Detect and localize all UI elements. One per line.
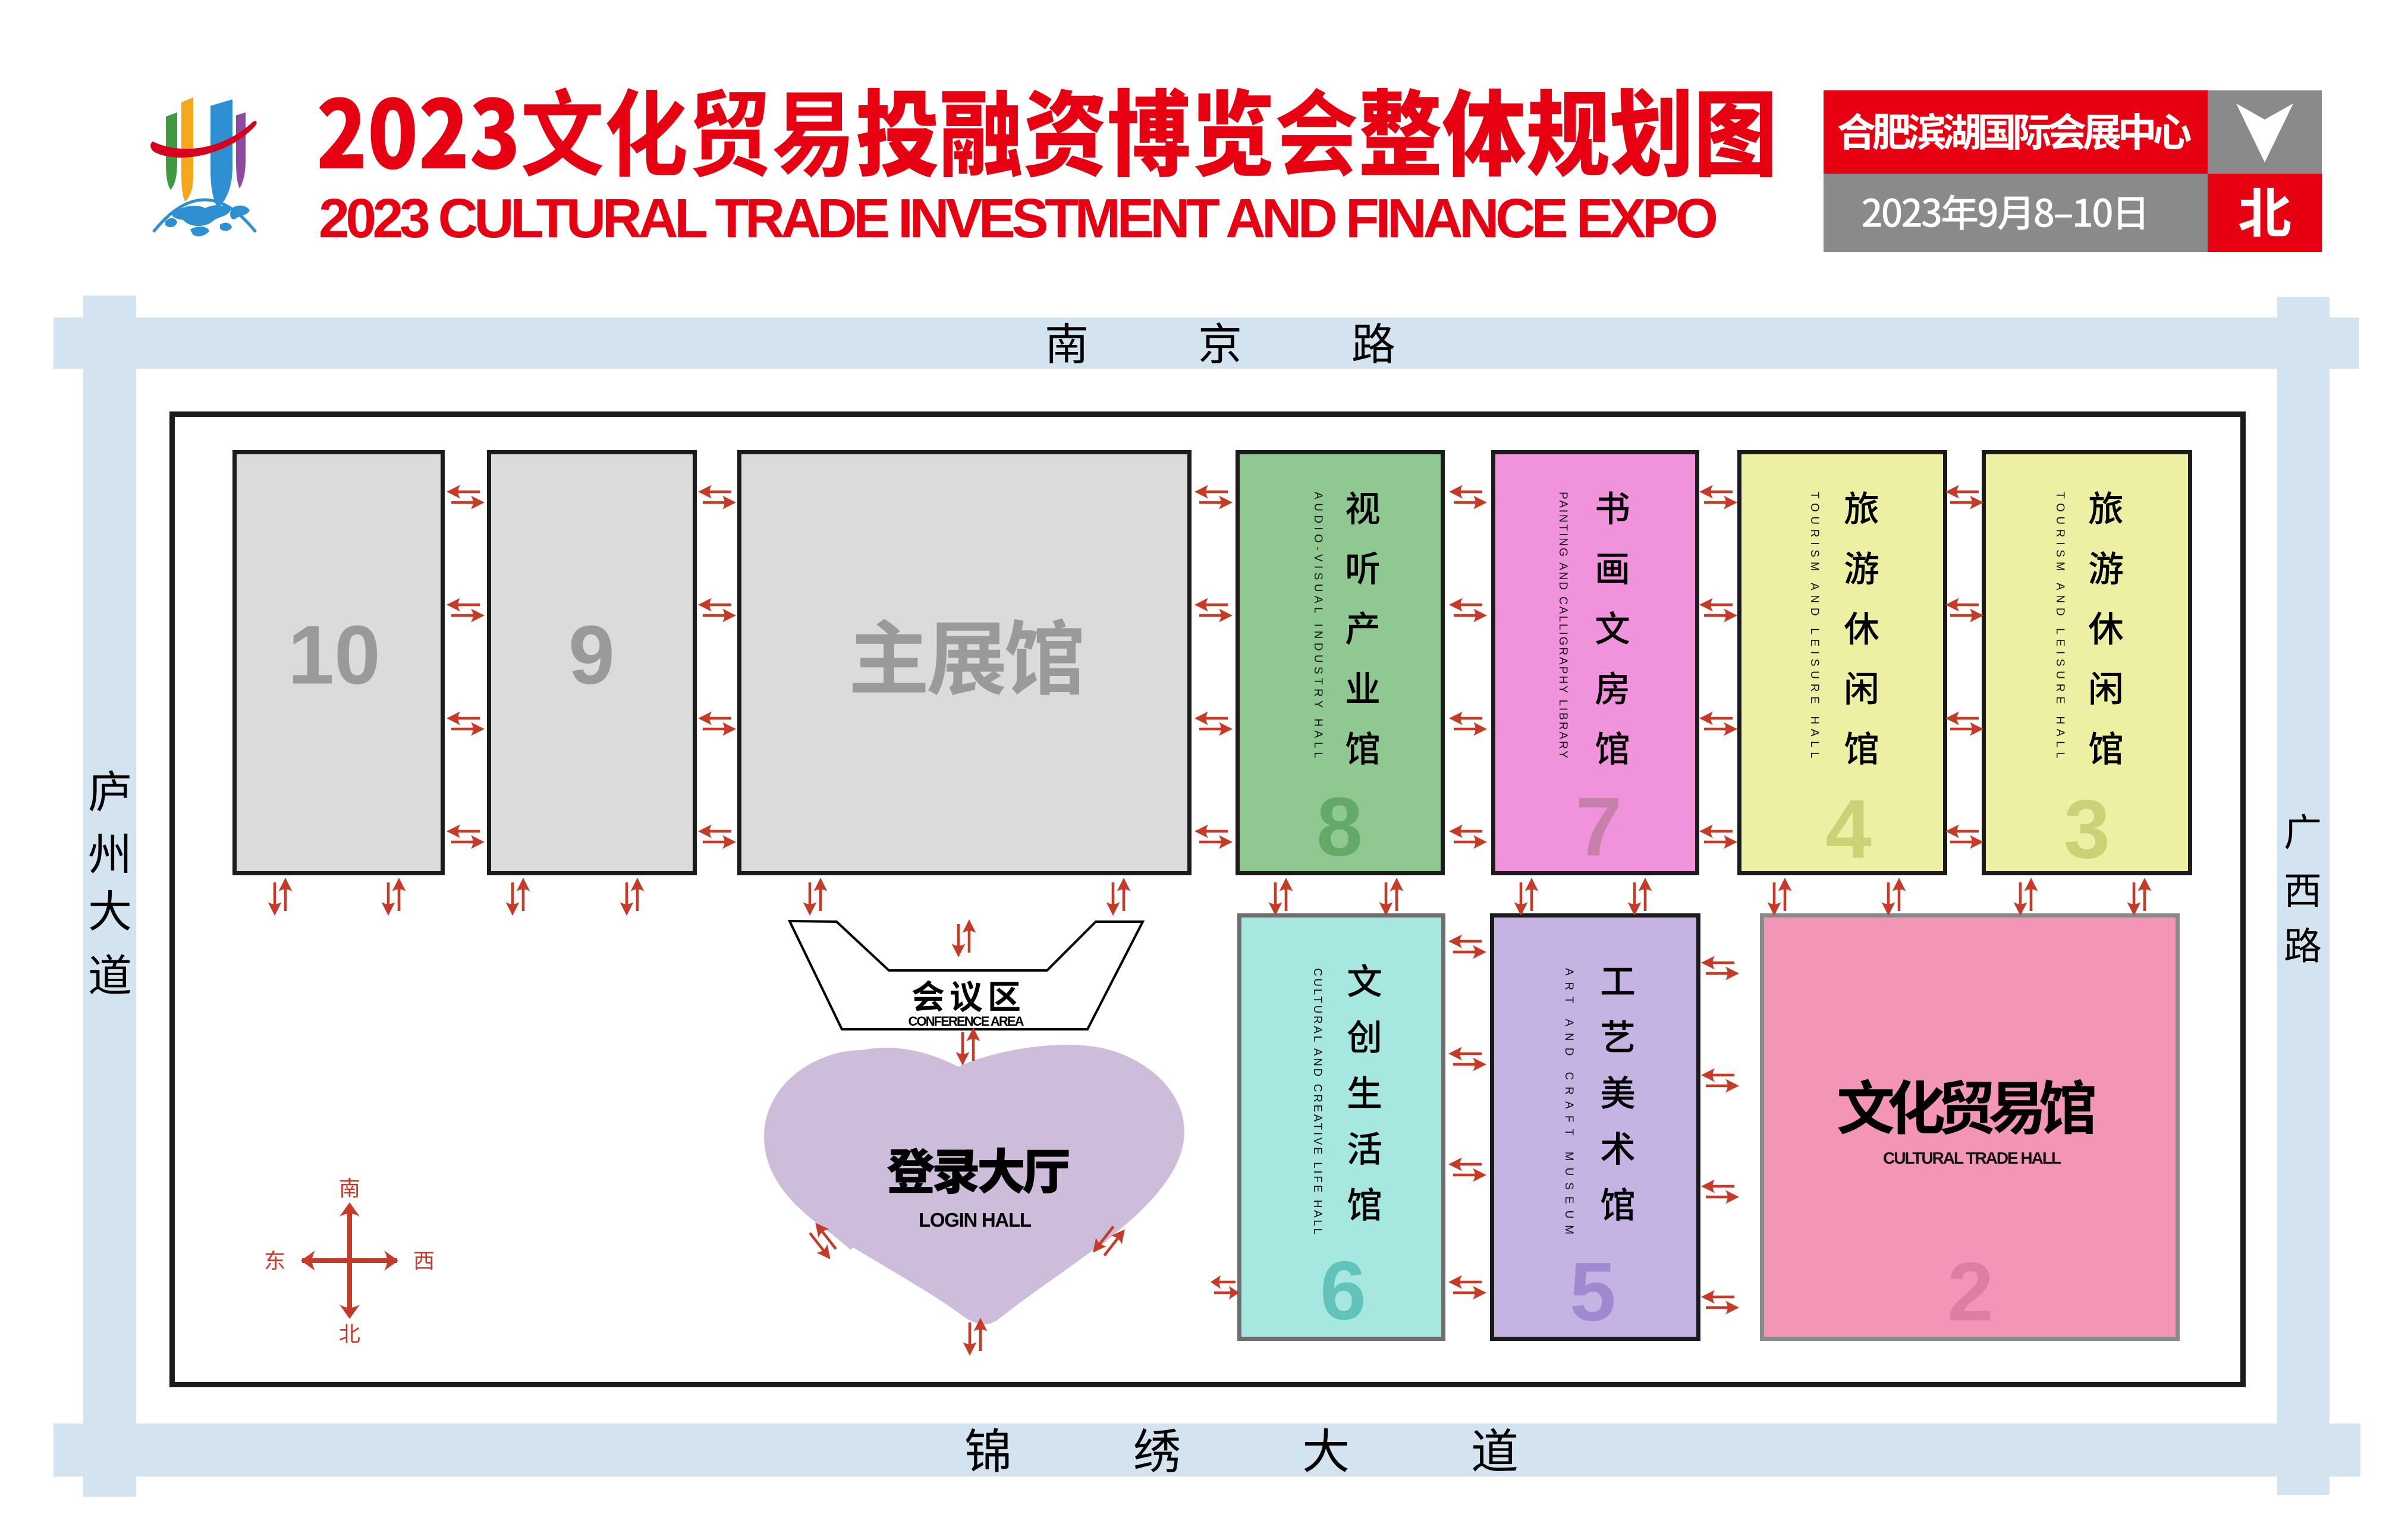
svg-text:9: 9 [568, 608, 615, 702]
svg-text:10: 10 [288, 608, 381, 702]
svg-text:8: 8 [1316, 780, 1363, 874]
svg-text:3: 3 [2064, 783, 2110, 876]
svg-text:2023 CULTURAL TRADE INVESTMENT: 2023 CULTURAL TRADE INVESTMENT AND FINAN… [319, 187, 1718, 249]
svg-text:CONFERENCE AREA: CONFERENCE AREA [908, 1014, 1024, 1029]
svg-text:LOGIN HALL: LOGIN HALL [919, 1209, 1032, 1231]
svg-text:2: 2 [1947, 1245, 1994, 1339]
svg-text:5: 5 [1570, 1245, 1616, 1339]
svg-text:CULTURAL TRADE HALL: CULTURAL TRADE HALL [1883, 1149, 2061, 1167]
svg-text:6: 6 [1320, 1244, 1366, 1337]
svg-text:4: 4 [1825, 783, 1872, 876]
svg-text:CULTURAL AND CREATIVE LIFE HAL: CULTURAL AND CREATIVE LIFE HALL [1311, 968, 1324, 1234]
svg-text:7: 7 [1576, 780, 1622, 874]
